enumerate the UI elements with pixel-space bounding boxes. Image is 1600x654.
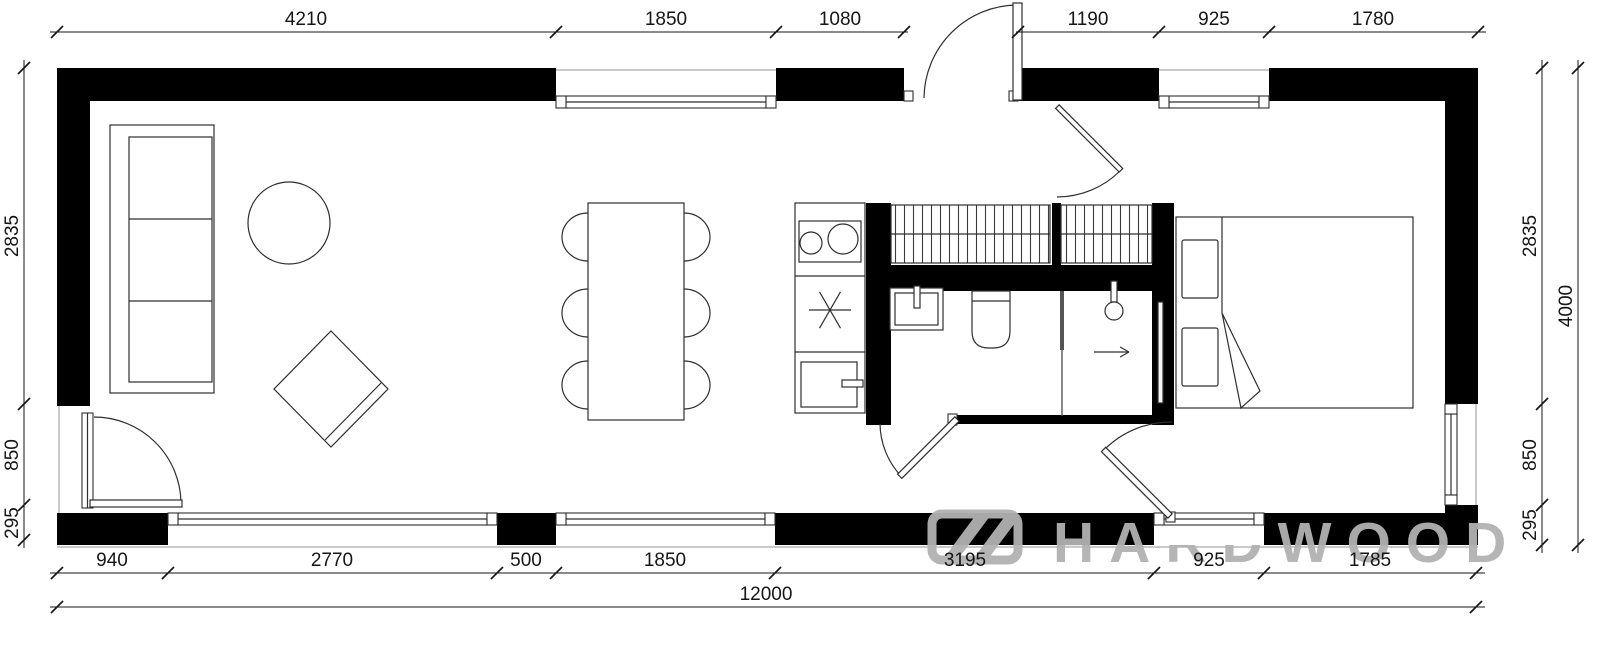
wall-left bbox=[57, 68, 90, 406]
shower-glass-panel bbox=[1158, 302, 1163, 403]
entry-door-leaf bbox=[1013, 3, 1022, 100]
toilet bbox=[972, 291, 1010, 348]
washbasin bbox=[890, 286, 943, 330]
dim-label: 850 bbox=[1520, 439, 1541, 471]
wardrobe-right bbox=[1061, 205, 1152, 263]
sofa bbox=[110, 125, 214, 393]
bedroom-door-leaf bbox=[1101, 447, 1172, 518]
dim-total-width: 12000 bbox=[50, 584, 1485, 613]
wall-bath-south bbox=[955, 415, 1174, 424]
dining-chair bbox=[684, 289, 710, 337]
watermark-text: HARDWOOD bbox=[1053, 511, 1521, 575]
dim-label: 2835 bbox=[2, 215, 23, 257]
bed bbox=[1176, 217, 1413, 408]
dim-label: 1850 bbox=[644, 550, 686, 571]
wall-top-right-1 bbox=[1018, 68, 1159, 101]
dim-label: 850 bbox=[2, 439, 23, 471]
pillow bbox=[1182, 328, 1218, 386]
kitchen-counter bbox=[795, 203, 865, 413]
window-right-850 bbox=[1445, 404, 1478, 505]
bathroom-door bbox=[880, 414, 959, 478]
bathroom-door-swing-arc bbox=[880, 424, 901, 476]
entry-door bbox=[904, 3, 1022, 101]
hall-door-leaf bbox=[1056, 105, 1123, 172]
dim-chain-top: 4210 1850 1080 1190 925 1780 bbox=[50, 9, 1486, 38]
dim-total-height: 4000 bbox=[1556, 60, 1584, 553]
dim-chain-right: 2835 850 295 bbox=[1520, 60, 1548, 553]
dim-label: 2770 bbox=[311, 550, 353, 571]
wall-kitchen-bath-divider bbox=[866, 203, 891, 425]
hall-bedroom-door bbox=[1056, 105, 1123, 197]
dim-label: 12000 bbox=[740, 584, 793, 605]
bathroom-door-leaf bbox=[898, 417, 960, 479]
dim-label: 1080 bbox=[819, 9, 861, 30]
bathroom bbox=[890, 281, 1163, 416]
faucet-icon bbox=[914, 286, 920, 308]
dining-chair bbox=[562, 361, 588, 409]
hall-door-swing-arc bbox=[1057, 171, 1120, 197]
dim-label: 295 bbox=[1520, 509, 1541, 541]
wall-top-mid bbox=[776, 68, 904, 101]
wall-top-left bbox=[57, 68, 556, 101]
dim-label: 4000 bbox=[1556, 285, 1577, 327]
shower-head-icon bbox=[1105, 302, 1123, 320]
dim-chain-left: 2835 850 295 bbox=[2, 60, 30, 548]
dim-label: 940 bbox=[96, 550, 128, 571]
dim-label: 1190 bbox=[1068, 9, 1109, 30]
terrace-door-leaf bbox=[90, 500, 182, 507]
dim-label: 4210 bbox=[285, 9, 327, 30]
dining-set bbox=[562, 203, 710, 420]
terrace-door-swing-arc bbox=[94, 417, 181, 503]
pillow bbox=[1182, 240, 1218, 298]
dining-chair bbox=[684, 213, 710, 261]
dim-label: 2835 bbox=[1520, 215, 1541, 257]
coffee-table bbox=[248, 182, 330, 264]
shower-arm bbox=[1111, 281, 1117, 302]
dim-label: 1780 bbox=[1352, 9, 1394, 30]
dim-label: 295 bbox=[2, 507, 23, 539]
wardrobe-left bbox=[891, 205, 1050, 263]
dining-table bbox=[588, 203, 684, 420]
window-bottom-2770 bbox=[168, 513, 497, 545]
window-top-1850 bbox=[556, 68, 776, 108]
armchair bbox=[274, 331, 388, 447]
dim-label: 925 bbox=[1198, 9, 1230, 30]
dim-label: 3195 bbox=[944, 550, 986, 571]
wall-bottom-1 bbox=[57, 513, 168, 545]
dining-chair bbox=[684, 361, 710, 409]
furniture bbox=[110, 125, 1413, 447]
floor-plan-page: HARDWOOD bbox=[0, 0, 1600, 654]
window-top-925 bbox=[1159, 68, 1269, 108]
dim-label: 925 bbox=[1193, 550, 1225, 571]
wall-bottom-2 bbox=[497, 513, 556, 545]
dim-label: 500 bbox=[510, 550, 542, 571]
bedroom-door bbox=[1101, 422, 1175, 522]
terrace-door-left bbox=[57, 406, 182, 513]
dining-chair bbox=[562, 289, 588, 337]
bedroom-door-swing-arc bbox=[1104, 422, 1172, 450]
wall-wardrobe-mullion bbox=[1052, 203, 1061, 265]
wall-right-upper bbox=[1445, 68, 1478, 404]
drain-arrow-icon bbox=[1094, 347, 1129, 357]
dining-chair bbox=[562, 213, 588, 261]
dim-label: 1785 bbox=[1349, 550, 1391, 571]
window-bottom-1850 bbox=[556, 513, 775, 545]
dim-label: 1850 bbox=[645, 9, 687, 30]
floor-plan-canvas: HARDWOOD bbox=[0, 0, 1600, 654]
wall-wardrobe-south bbox=[866, 265, 1174, 291]
oven-handle bbox=[842, 380, 863, 387]
